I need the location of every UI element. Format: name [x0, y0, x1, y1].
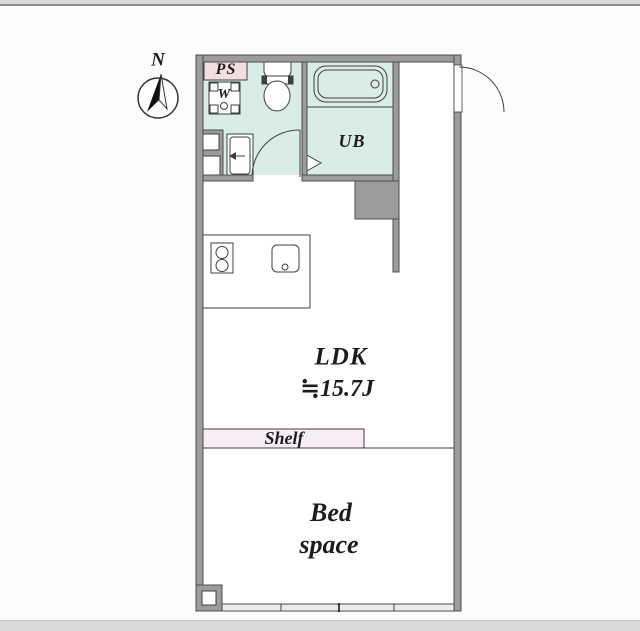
pipe-space-label: PS — [216, 62, 237, 78]
cabinet-bottom — [201, 156, 220, 176]
shelf-label: Shelf — [264, 429, 303, 447]
ub-bottom-wall — [302, 175, 399, 181]
left-wall — [196, 55, 203, 588]
washer-label: W — [218, 88, 230, 102]
pillar-core — [202, 591, 216, 605]
ldk-size-label: ≒15.7J — [300, 377, 374, 401]
toilet-bowl — [264, 81, 290, 111]
washroom-ub-divider-wall — [302, 62, 307, 178]
washer-pan-corner — [231, 83, 239, 91]
toilet-hinge-right — [288, 76, 293, 84]
bed-space-label-1: Bed — [310, 500, 352, 526]
duct-block — [355, 181, 399, 219]
bed-space-label-2: space — [299, 532, 358, 558]
unit-bath-floor — [307, 62, 393, 175]
washroom-bottom-wall — [203, 175, 253, 181]
washer-pan-corner — [231, 105, 239, 113]
toilet-hinge-left — [262, 76, 267, 84]
corner-pillar — [196, 585, 222, 611]
unit-bath-label: UB — [338, 132, 365, 150]
washer-pan-corner — [210, 105, 218, 113]
bottom-window — [222, 603, 454, 612]
ldk-label: LDK — [315, 345, 368, 370]
entrance-door — [454, 65, 504, 112]
compass-north-label: N — [151, 51, 165, 70]
kitchen-counter — [203, 235, 310, 308]
cabinet-top — [202, 134, 219, 150]
right-wall — [454, 55, 461, 611]
compass-icon — [138, 74, 178, 118]
entrance-door-swing-arc — [459, 67, 504, 112]
entrance-door-leaf — [454, 65, 462, 112]
kitchen-corridor-wall — [393, 62, 399, 272]
toilet — [262, 57, 293, 111]
window-frame — [222, 604, 454, 611]
